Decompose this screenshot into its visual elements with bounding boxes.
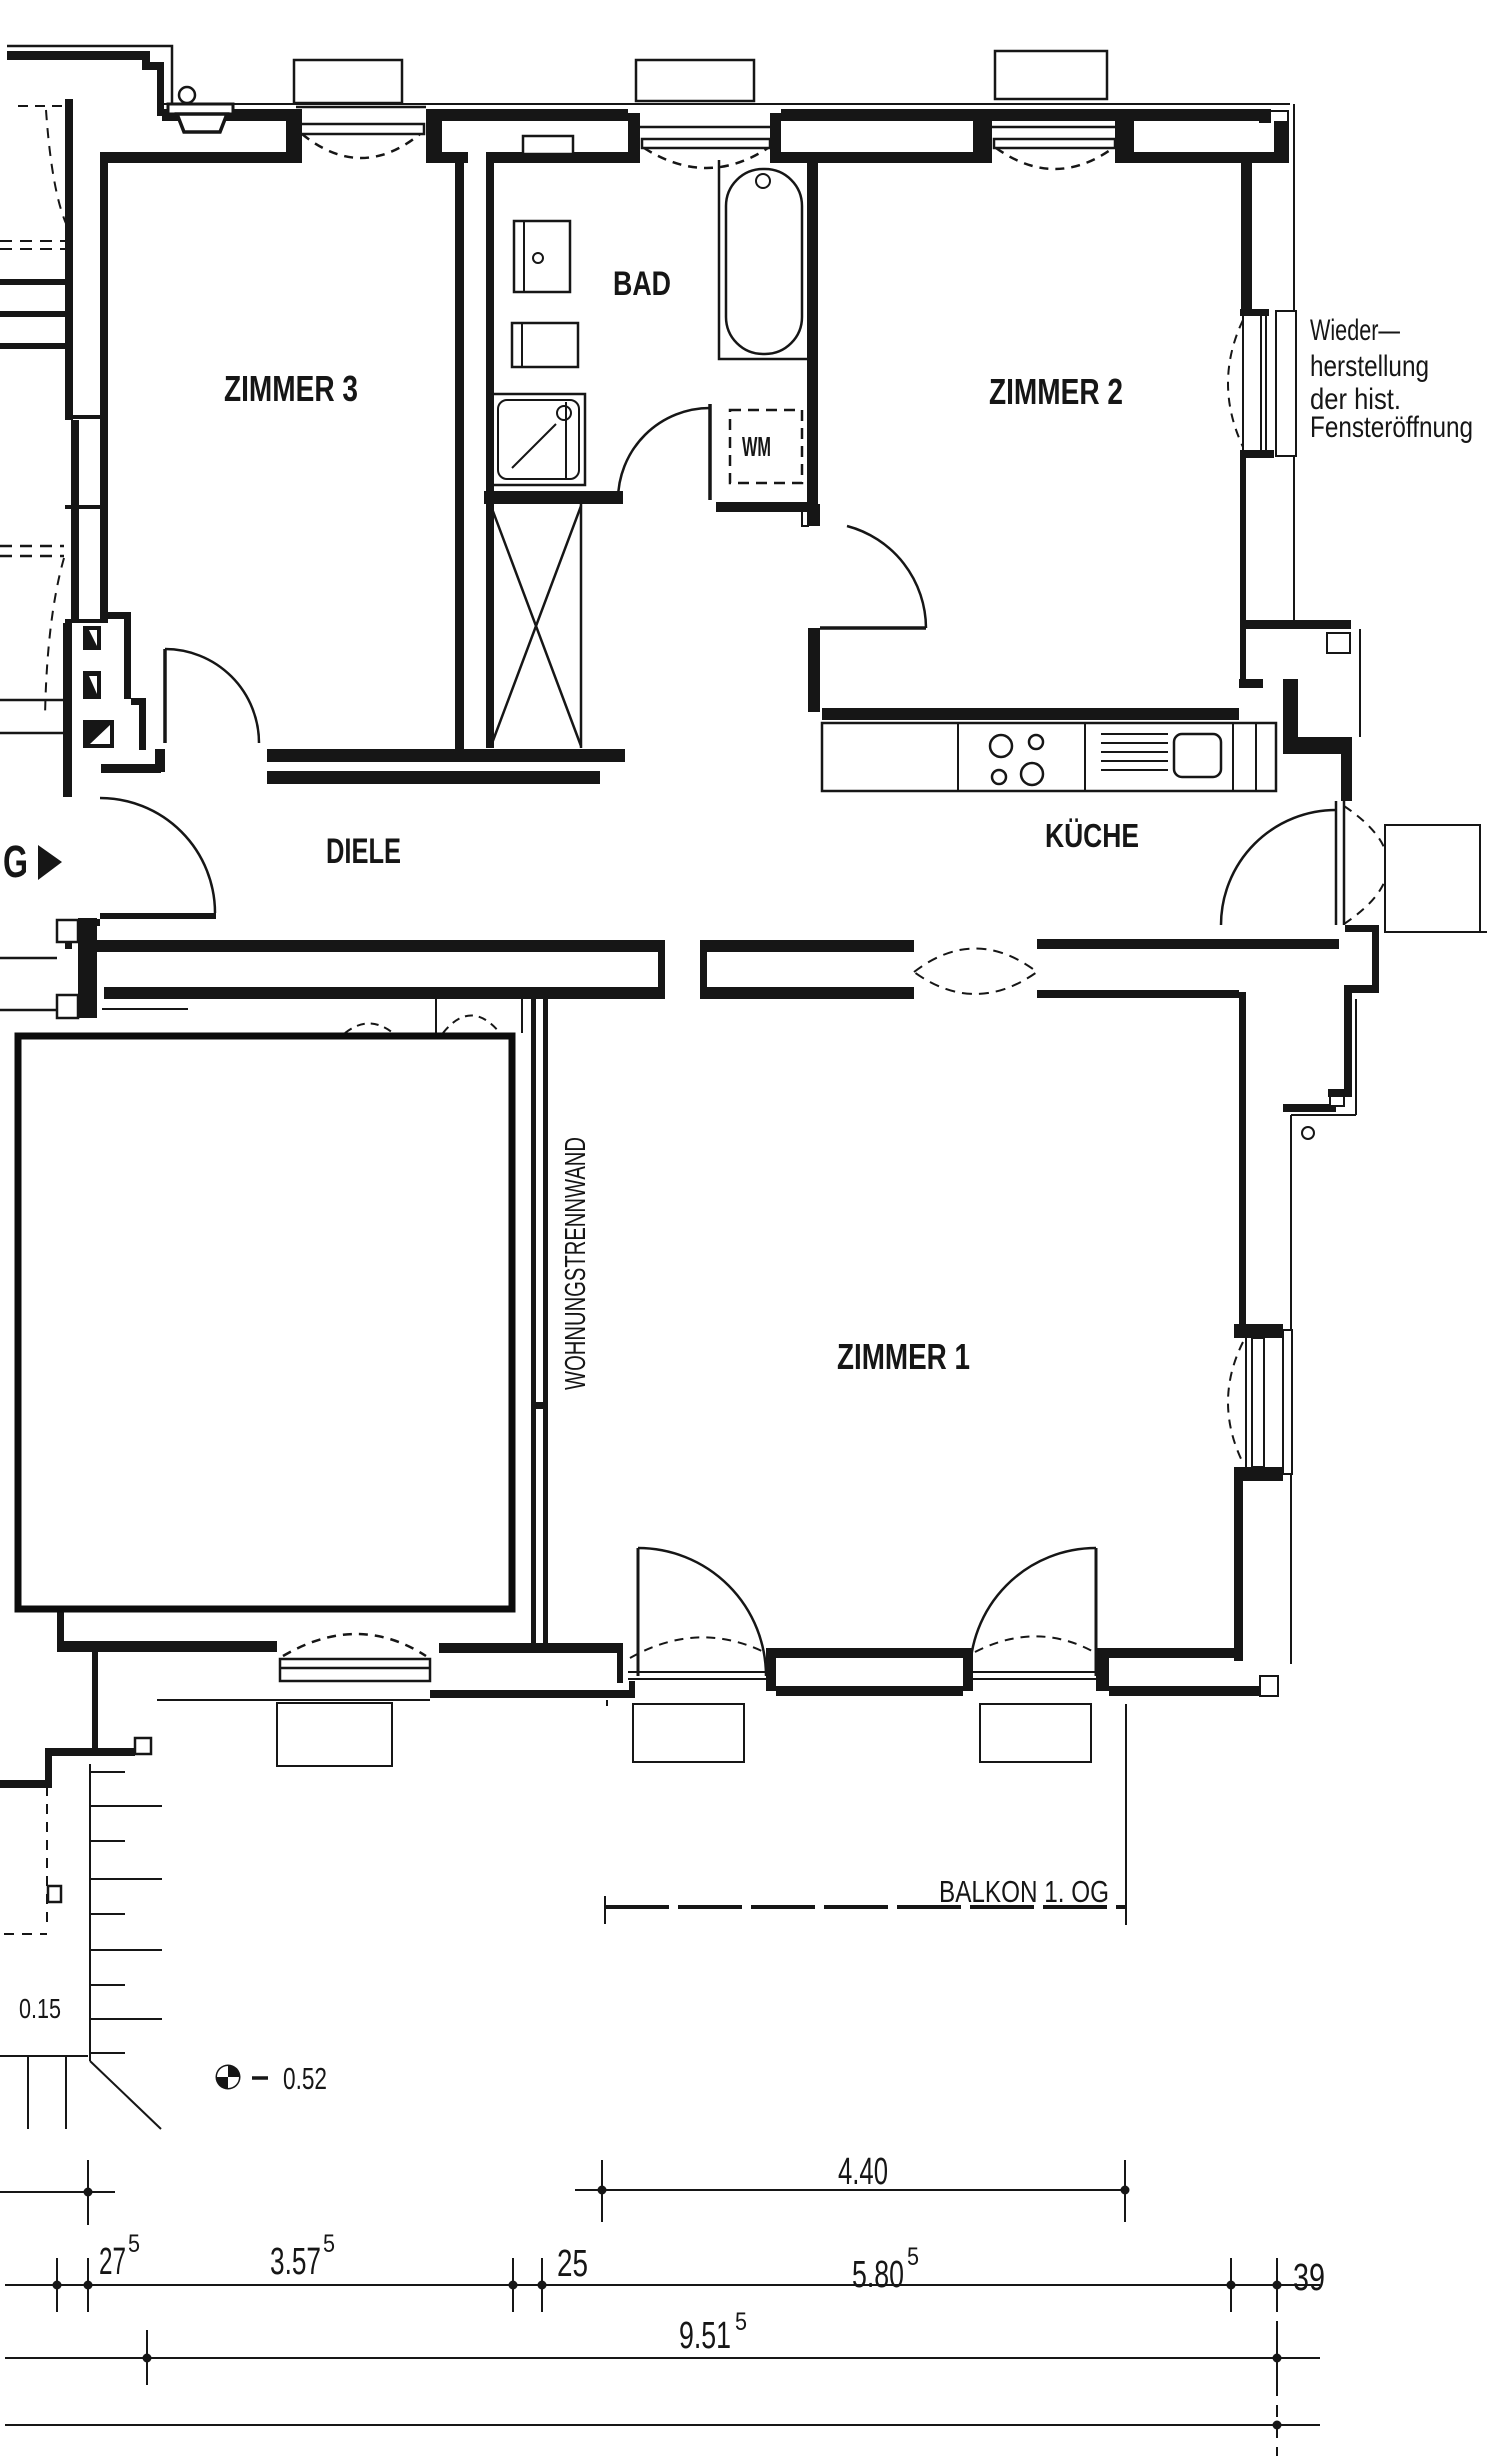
svg-text:5: 5 [735,2308,747,2336]
svg-text:4.40: 4.40 [838,2151,888,2193]
svg-text:Wieder—: Wieder— [1310,314,1400,347]
svg-text:BALKON 1. OG: BALKON 1. OG [939,1874,1109,1909]
svg-text:0.52: 0.52 [283,2061,327,2096]
svg-text:ZIMMER 3: ZIMMER 3 [224,368,358,409]
svg-text:herstellung: herstellung [1310,350,1429,383]
svg-text:39: 39 [1293,2257,1325,2299]
svg-text:5.80: 5.80 [852,2254,904,2296]
svg-text:5: 5 [128,2230,140,2258]
svg-text:WM: WM [742,431,771,462]
svg-text:KÜCHE: KÜCHE [1045,817,1139,854]
svg-text:3.57: 3.57 [270,2241,321,2283]
svg-text:5: 5 [907,2243,919,2271]
svg-text:25: 25 [557,2243,588,2285]
svg-text:27: 27 [99,2241,126,2283]
svg-text:5: 5 [323,2230,335,2258]
svg-text:9.51: 9.51 [679,2315,731,2357]
svg-text:DIELE: DIELE [326,832,401,871]
svg-text:WOHNUNGSTRENNWAND: WOHNUNGSTRENNWAND [560,1137,592,1390]
svg-text:Fensteröffnung: Fensteröffnung [1310,411,1473,444]
svg-text:0.15: 0.15 [19,1993,61,2024]
svg-text:ZIMMER 2: ZIMMER 2 [989,371,1123,412]
svg-text:G: G [3,836,28,887]
svg-text:ZIMMER 1: ZIMMER 1 [837,1336,970,1377]
svg-text:BAD: BAD [613,265,671,303]
